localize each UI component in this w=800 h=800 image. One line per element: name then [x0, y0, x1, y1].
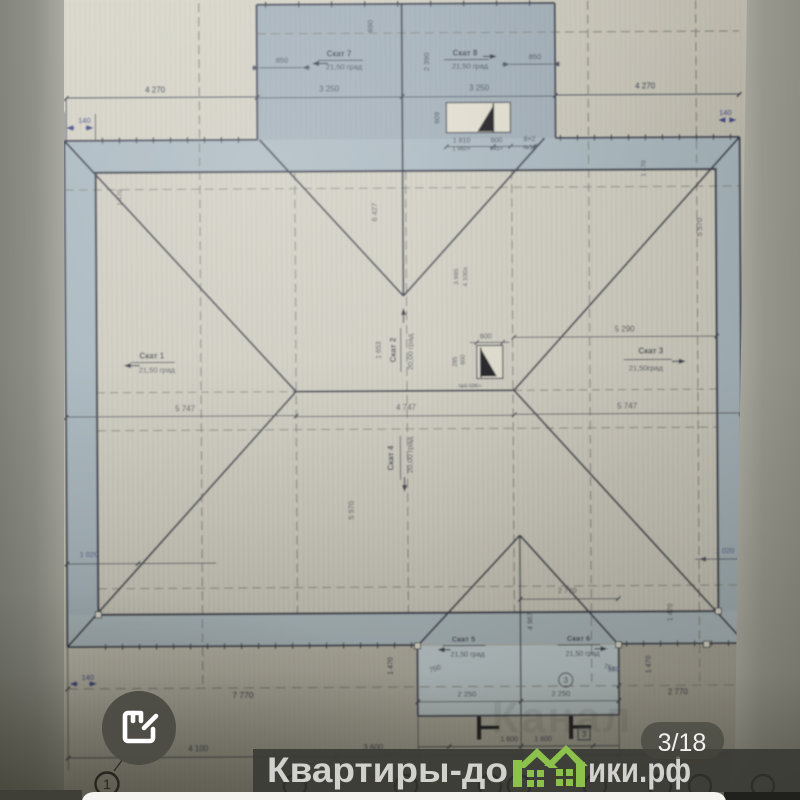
svg-text:1: 1: [103, 776, 111, 792]
svg-text:Квартиры-до: Квартиры-до: [267, 751, 508, 790]
svg-text:3/18: 3/18: [658, 729, 707, 757]
